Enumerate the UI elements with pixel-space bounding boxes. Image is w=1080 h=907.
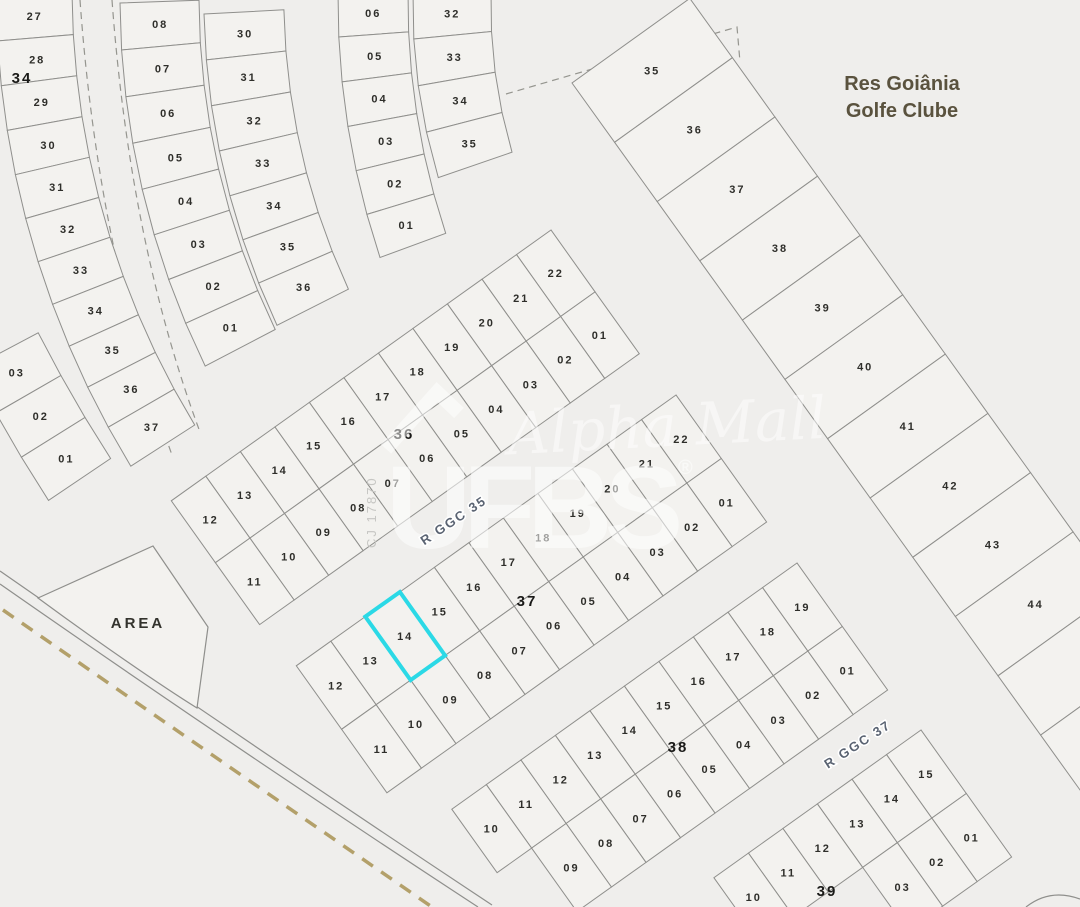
lot-number-label: 02 <box>557 355 573 367</box>
lot-number-label: 44 <box>1027 599 1043 611</box>
lot-number-label: 34 <box>88 305 104 317</box>
lot-number-label: 03 <box>378 136 394 148</box>
lot-number-label: 01 <box>719 498 735 510</box>
lot-number-label: 35 <box>462 139 478 151</box>
lot-number-label: 18 <box>410 367 426 379</box>
lot-number-label: 14 <box>622 725 638 737</box>
lot-number-label: 43 <box>985 540 1001 552</box>
block-number-label: 39 <box>817 883 838 900</box>
lot-number-label: 10 <box>746 892 762 904</box>
lot-number-label: 14 <box>272 465 288 477</box>
block-number-label: 37 <box>517 593 538 610</box>
lot-number-label: 05 <box>454 429 470 441</box>
watermark-registered-mark: ® <box>678 457 693 479</box>
lot-number-label: 02 <box>205 281 221 293</box>
lot-number-label: 07 <box>632 813 648 825</box>
lot-number-label: 12 <box>202 515 218 527</box>
lot-number-label: 04 <box>371 94 387 106</box>
lot-number-label: 13 <box>849 818 865 830</box>
lot-number-label: 36 <box>296 282 312 294</box>
lot-number-label: 02 <box>684 522 700 534</box>
lot-number-label: 03 <box>770 715 786 727</box>
lot-number-label: 12 <box>815 843 831 855</box>
lot-number-label: 35 <box>644 65 660 77</box>
lot-number-label: 36 <box>687 125 703 137</box>
lot-number-label: 35 <box>105 345 121 357</box>
plat-map: 2221201918171615141312010203040506070809… <box>0 0 1080 907</box>
lot-number-label: 16 <box>691 676 707 688</box>
lot-number-label: 11 <box>780 868 796 880</box>
lot-number-label: 07 <box>511 645 527 657</box>
lot-number-label: 33 <box>447 52 463 64</box>
lot-number-label: 14 <box>884 794 900 806</box>
lot-number-label: 38 <box>772 243 788 255</box>
lot-number-label: 05 <box>367 51 383 63</box>
lot-number-label: 18 <box>760 627 776 639</box>
lot-number-label: 12 <box>328 680 344 692</box>
lot-number-label: 21 <box>513 293 529 305</box>
lot-number-label: 01 <box>592 330 608 342</box>
lot-number-label: 30 <box>40 140 56 152</box>
lot-number-label: 01 <box>58 453 74 465</box>
lot-number-label: 01 <box>398 220 414 232</box>
lot-number-label: 11 <box>518 799 534 811</box>
lot-number-label: 05 <box>168 152 184 164</box>
lot-number-label: 16 <box>341 416 357 428</box>
lot-number-label: 02 <box>929 857 945 869</box>
lot-number-label: 28 <box>29 54 45 66</box>
lot-number-label: 33 <box>255 158 271 170</box>
lot-number-label: 04 <box>736 739 752 751</box>
lot-number-label: 01 <box>964 833 980 845</box>
lot-number-label: 10 <box>281 552 297 564</box>
lot-number-label: 35 <box>280 242 296 254</box>
lot-number-label: 19 <box>794 602 810 614</box>
lot-number-label: 29 <box>34 97 50 109</box>
lot-number-label: 27 <box>27 11 43 23</box>
lot-number-label: 32 <box>60 224 76 236</box>
lot-number-label: 36 <box>123 384 139 396</box>
lot-number-label: 40 <box>857 362 873 374</box>
lot-number-label: 09 <box>563 863 579 875</box>
lot-number-label: 03 <box>191 239 207 251</box>
lot-number-label: 37 <box>729 184 745 196</box>
lot-number-label: 03 <box>9 367 25 379</box>
lot-number-label: 09 <box>442 695 458 707</box>
lot-number-label: 32 <box>246 115 262 127</box>
lot-number-label: 09 <box>316 527 332 539</box>
lot-number-label: 13 <box>237 490 253 502</box>
lot-number-label: 22 <box>548 268 564 280</box>
lot-number-label: 11 <box>247 576 263 588</box>
lot-number-label: 32 <box>444 8 460 20</box>
lot-number-label: 12 <box>553 774 569 786</box>
lot-number-label: 06 <box>365 8 381 20</box>
block-number-label: 34 <box>12 70 33 87</box>
lot-number-label: 02 <box>387 178 403 190</box>
lot-number-label: 34 <box>452 96 468 108</box>
block-number-label: 38 <box>668 739 689 756</box>
plat-map-canvas: 2221201918171615141312010203040506070809… <box>0 0 1080 907</box>
lot-number-label: 02 <box>805 690 821 702</box>
lot-number-label: 15 <box>656 701 672 713</box>
lot-number-label: 31 <box>49 182 65 194</box>
area-label: AREA <box>111 615 166 632</box>
lot-number-label: 04 <box>178 196 194 208</box>
lot-number-label: 17 <box>375 391 391 403</box>
lot-number-label: 14 <box>397 631 413 643</box>
lot-number-label: 08 <box>152 19 168 31</box>
lot-number-label: 01 <box>223 322 239 334</box>
map-title-line2: Golfe Clube <box>846 100 958 122</box>
lot-number-label: 15 <box>432 606 448 618</box>
lot-number-label: 30 <box>237 29 253 41</box>
lot-number-label: 39 <box>814 303 830 315</box>
lot-number-label: 04 <box>488 404 504 416</box>
lot-number-label: 07 <box>155 64 171 76</box>
lot-number-label: 10 <box>484 824 500 836</box>
lot-number-label: 37 <box>144 422 160 434</box>
watermark-code-text: CJ 17870 <box>364 476 379 548</box>
lot-number-label: 05 <box>701 764 717 776</box>
lot-number-label: 17 <box>725 651 741 663</box>
lot-number-label: 08 <box>477 670 493 682</box>
lot-number-label: 19 <box>444 342 460 354</box>
lot-number-label: 06 <box>667 789 683 801</box>
lot-number-label: 20 <box>479 318 495 330</box>
lot-number-label: 41 <box>900 421 916 433</box>
lot-number-label: 02 <box>33 411 49 423</box>
lot-number-label: 15 <box>918 769 934 781</box>
lot-number-label: 03 <box>523 379 539 391</box>
lot-number-label: 03 <box>894 882 910 894</box>
lot-number-label: 10 <box>408 719 424 731</box>
lot-number-label: 13 <box>587 750 603 762</box>
lot-number-label: 11 <box>374 744 390 756</box>
lot-number-label: 31 <box>240 72 256 84</box>
lot-number-label: 05 <box>580 596 596 608</box>
map-title-line1: Res Goiânia <box>844 73 960 95</box>
lot-number-label: 01 <box>840 666 856 678</box>
lot-number-label: 16 <box>466 582 482 594</box>
lot-number-label: 06 <box>160 108 176 120</box>
lot-number-label: 13 <box>363 656 379 668</box>
lot-number-label: 15 <box>306 441 322 453</box>
lot-number-label: 08 <box>598 838 614 850</box>
lot-number-label: 06 <box>546 621 562 633</box>
lot-number-label: 34 <box>266 200 282 212</box>
watermark-brand-text: UFBS <box>386 442 680 574</box>
lot-number-label: 33 <box>73 265 89 277</box>
lot-number-label: 42 <box>942 480 958 492</box>
